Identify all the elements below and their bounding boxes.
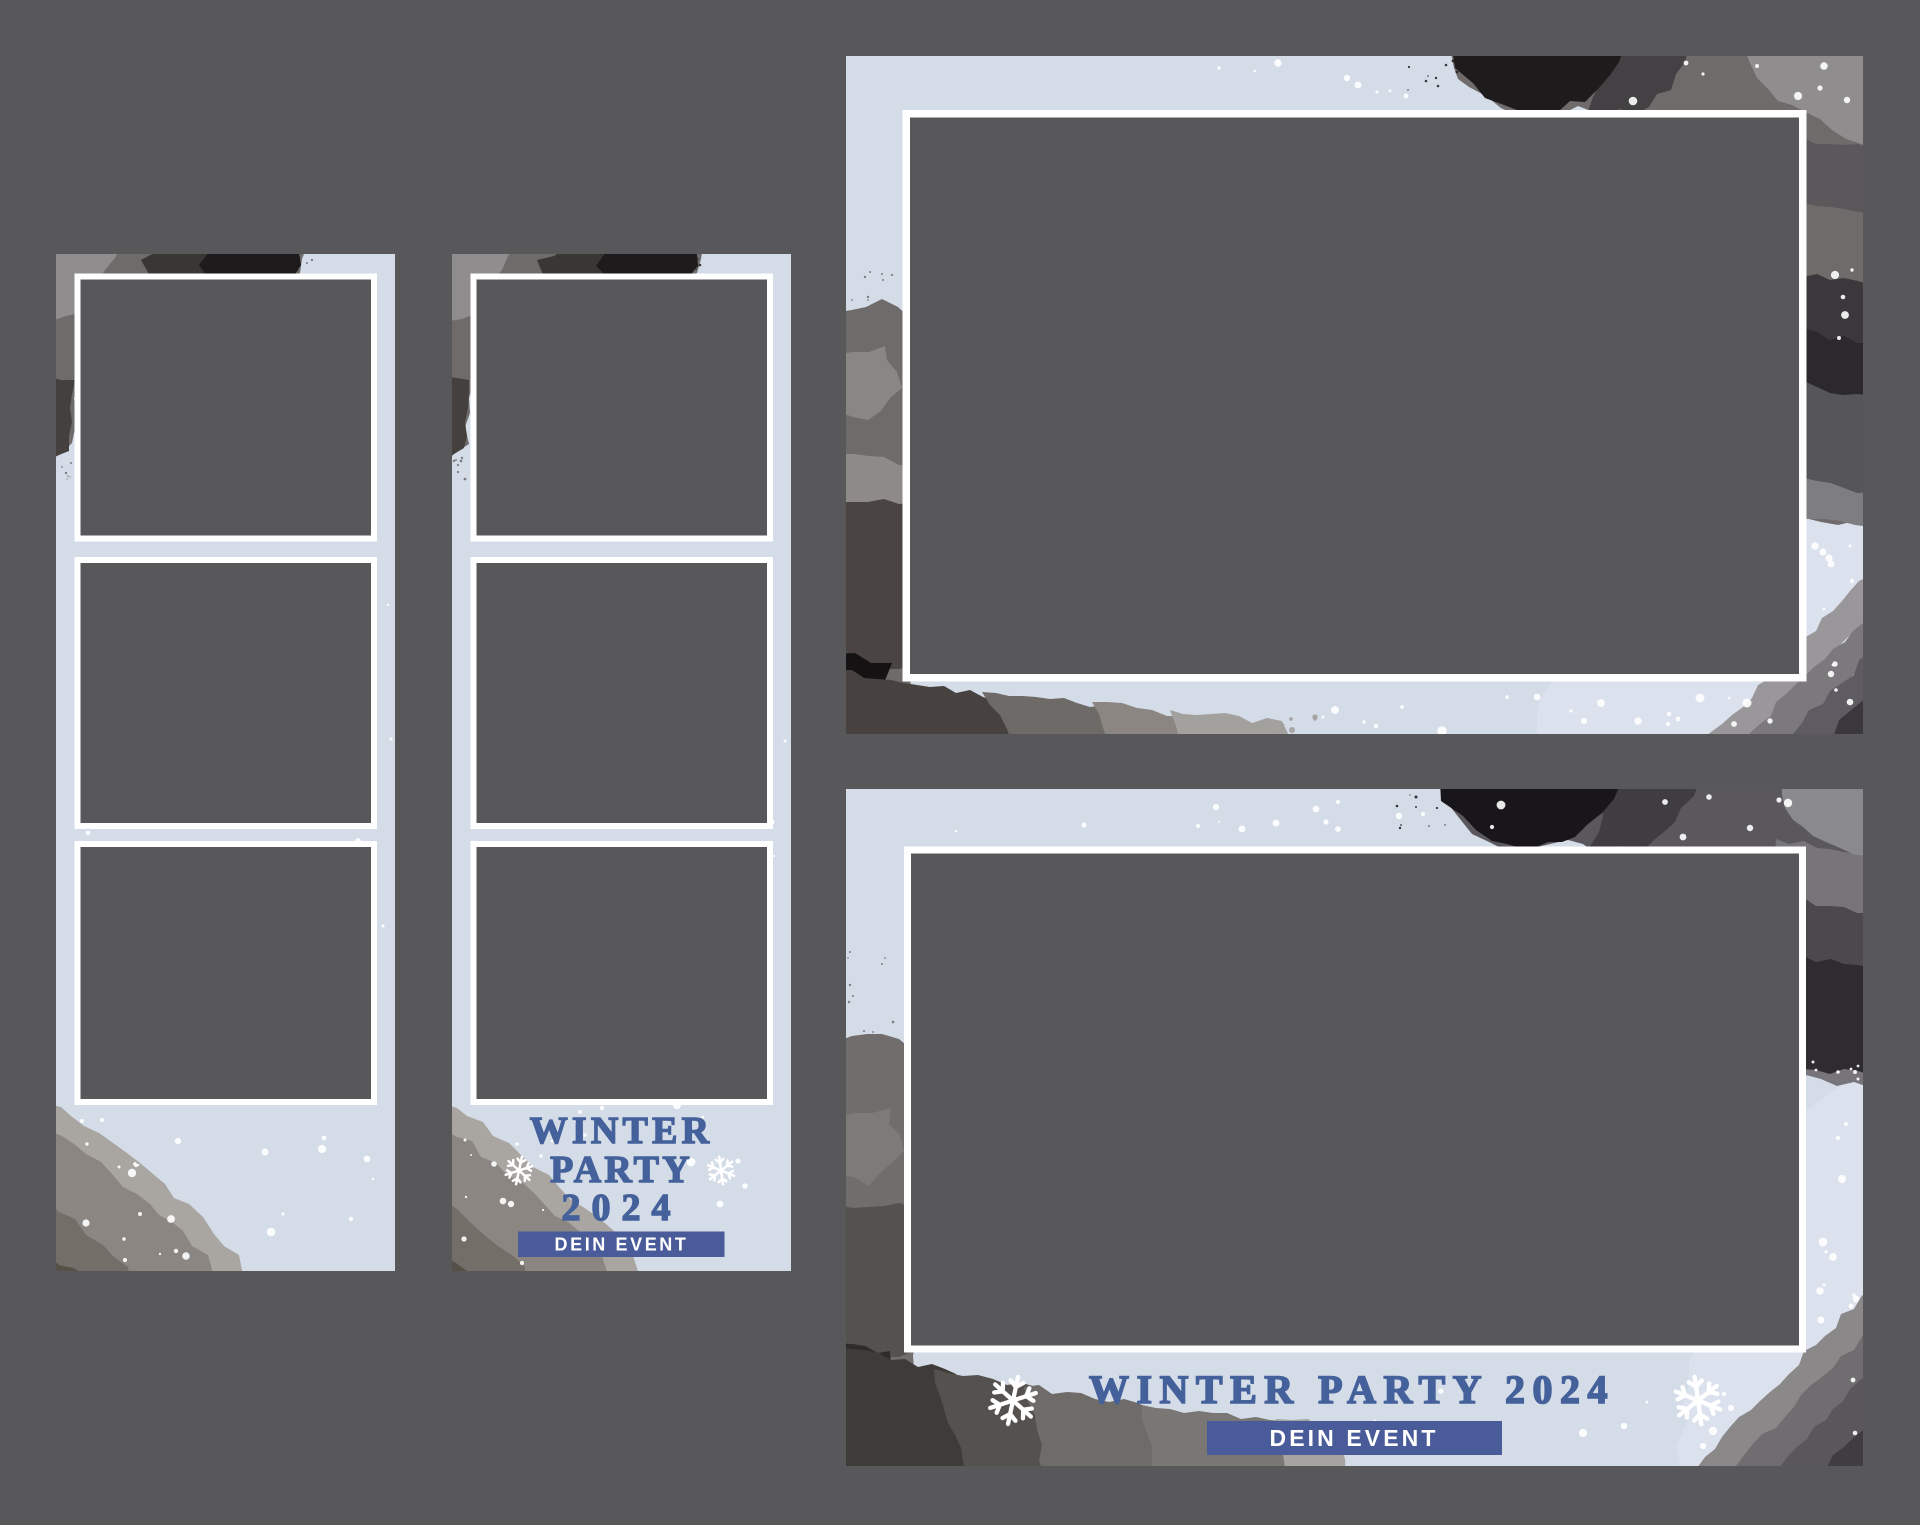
svg-text:PARTY: PARTY xyxy=(550,1149,693,1191)
svg-text:WINTER PARTY 2024: WINTER PARTY 2024 xyxy=(1089,1367,1615,1412)
svg-text:DEIN EVENT: DEIN EVENT xyxy=(1269,1425,1438,1451)
svg-text:2024: 2024 xyxy=(562,1187,682,1229)
svg-text:WINTER: WINTER xyxy=(530,1110,714,1152)
svg-text:DEIN EVENT: DEIN EVENT xyxy=(554,1234,688,1254)
